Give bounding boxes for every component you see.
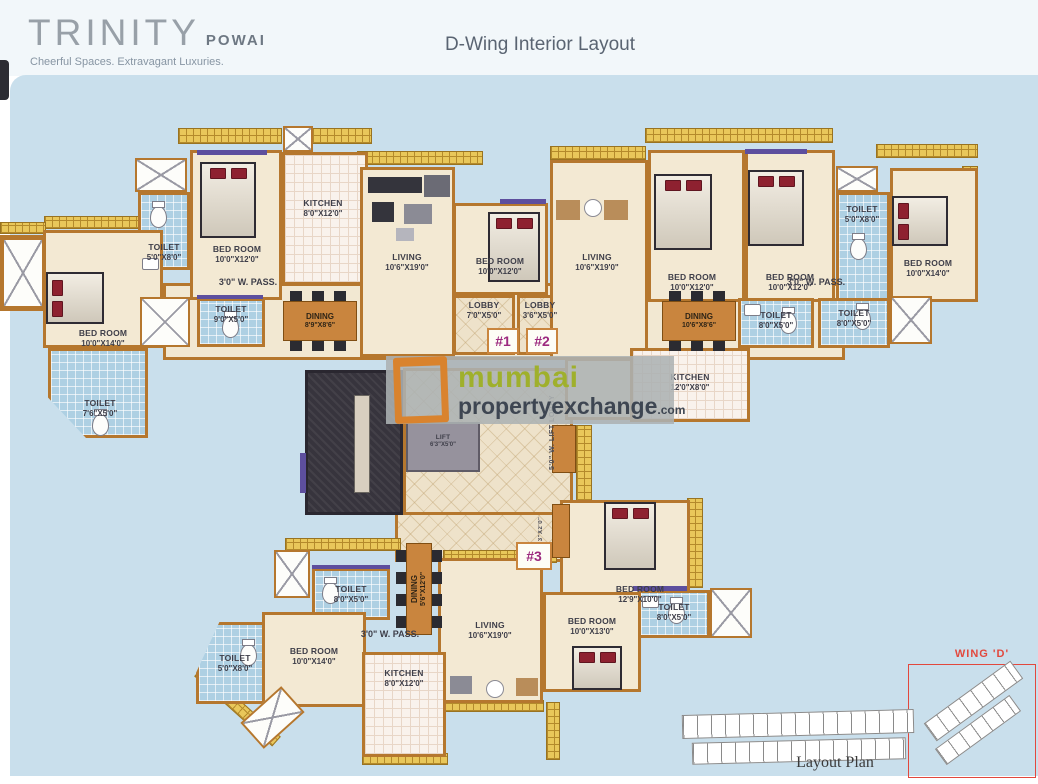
dining-table-icon: DINING5'6"X12'0"	[396, 543, 442, 635]
unit-3-badge: #3	[516, 542, 552, 570]
wall-accent	[197, 150, 267, 155]
watermark-word2-text: propertyexchange	[458, 393, 657, 419]
room-dim: 10'6"X19'0"	[357, 263, 457, 273]
room-name: LOBBY	[500, 300, 580, 311]
sofa-icon	[404, 204, 432, 224]
room-label: TOILET8'0"X5'0"	[736, 310, 816, 331]
room-dim: 8'0"X5'0"	[736, 321, 816, 331]
site-building-strip	[682, 709, 915, 739]
room-label: TOILET5'0"X8'0"	[822, 204, 902, 225]
room-dim: 10'6"X19'0"	[547, 263, 647, 273]
room-name: TOILET	[311, 584, 391, 595]
room-name: TOILET	[191, 304, 271, 315]
dining-table-icon: DINING10'6"X8'6"	[662, 291, 736, 351]
room-dim: 8'9"X8'6"	[305, 322, 335, 330]
room-dim: 5'0"X8'0"	[822, 215, 902, 225]
bed-icon	[200, 162, 256, 238]
room-label: DINING10'6"X8'6"	[663, 302, 735, 340]
room-label: DINING8'9"X8'6"	[284, 302, 356, 340]
room-name: BED ROOM	[542, 616, 642, 627]
shaft-x-icon	[836, 166, 878, 192]
room-dim: 7'6"X5'0"	[60, 409, 140, 419]
room-name: BED ROOM	[264, 646, 364, 657]
room-label: KITCHEN8'0"X12'0"	[273, 198, 373, 219]
toilet-icon	[850, 238, 867, 260]
brand-name: TRINITY	[28, 12, 200, 53]
pillow	[579, 652, 595, 663]
room-dim: 8'0"X12'0"	[354, 679, 454, 689]
pillow	[612, 508, 628, 519]
shaft-x-icon	[2, 238, 44, 308]
room-label: BED ROOM10'0"X14'0"	[878, 258, 978, 279]
watermark-com: .com	[657, 403, 685, 417]
room-label: BED ROOM10'0"X12'0"	[450, 256, 550, 277]
room-name: TOILET	[822, 204, 902, 215]
shaft-x-icon	[710, 588, 752, 638]
pillow	[52, 301, 63, 317]
room-name: BED ROOM	[53, 328, 153, 339]
room-label: LIVING10'6"X19'0"	[440, 620, 540, 641]
niche-block	[552, 504, 570, 558]
wall-accent	[300, 453, 306, 493]
room-dim: 10'6"X19'0"	[440, 631, 540, 641]
sofa-icon	[372, 202, 394, 222]
room-name: TOILET	[60, 398, 140, 409]
room-dim: 8'0"X5'0"	[814, 319, 894, 329]
room-label: LIFT6'3"X5'0"	[406, 434, 480, 450]
watermark-word2: propertyexchange.com	[458, 395, 685, 418]
pillow	[665, 180, 681, 191]
pillow	[496, 218, 512, 229]
room-name: BED ROOM	[187, 244, 287, 255]
wall-accent	[500, 199, 546, 204]
unit-2-badge: #2	[526, 328, 558, 354]
watermark-logo-icon	[393, 356, 449, 424]
bed-icon	[604, 502, 656, 570]
room-dim: 10'0"X12'0"	[450, 267, 550, 277]
room-dim: 5'6"X12'0"	[420, 572, 428, 606]
room-label: TOILET8'0"X5'0"	[634, 602, 714, 623]
watermark: mumbai propertyexchange.com	[386, 356, 674, 424]
pillow	[686, 180, 702, 191]
pillow	[600, 652, 616, 663]
chairs	[290, 291, 350, 301]
room-name: DINING	[306, 312, 334, 322]
room-label: TOILET8'0"X5'0"	[311, 584, 391, 605]
room-dim: 10'0"X14'0"	[878, 269, 978, 279]
table-top: DINING8'9"X8'6"	[283, 301, 357, 341]
room-dim: 3'6"X5'0"	[500, 311, 580, 321]
exterior-wall	[546, 702, 560, 760]
room-dim: 5'0"X8'0"	[195, 664, 275, 674]
pillow	[231, 168, 247, 179]
room-dim: 6'3"X5'0"	[406, 442, 480, 450]
brand-location: POWAI	[206, 32, 266, 49]
room-label: TOILET7'6"X5'0"	[60, 398, 140, 419]
table-top: DINING5'6"X12'0"	[406, 543, 432, 635]
edge-logo-mark	[0, 60, 9, 100]
tv-console-icon	[368, 177, 422, 193]
room-name: TOILET	[736, 310, 816, 321]
room-dim: 10'0"X12'0"	[642, 283, 742, 293]
pillow	[210, 168, 226, 179]
unit-1-badge: #1	[487, 328, 519, 354]
room-label: TOILET5'0"X8'0"	[195, 653, 275, 674]
room-name: TOILET	[814, 308, 894, 319]
exterior-wall	[550, 146, 646, 160]
passage-label: 3'0" W. PASS.	[756, 277, 876, 287]
wall-accent	[197, 295, 263, 299]
toilet-icon	[150, 206, 167, 228]
room-name: TOILET	[195, 653, 275, 664]
room-dim: 9'0"X5'0"	[191, 315, 271, 325]
exterior-wall	[645, 128, 833, 143]
wall-accent	[745, 149, 807, 154]
room-name: DINING	[685, 312, 713, 322]
room-name: LIVING	[357, 252, 457, 263]
room-dim: 10'0"X14'0"	[264, 657, 364, 667]
room-name: BED ROOM	[590, 584, 690, 595]
bed-icon	[572, 646, 622, 690]
room-name: BED ROOM	[642, 272, 742, 283]
room-label: LIVING10'6"X19'0"	[357, 252, 457, 273]
chairs	[669, 341, 729, 351]
shaft-x-icon	[890, 296, 932, 344]
site-layout-plan: WING 'D' Layout Plan	[680, 648, 1036, 780]
wing-d-label: WING 'D'	[930, 648, 1034, 660]
pillow	[758, 176, 774, 187]
table-icon	[486, 680, 504, 698]
room-label: BED ROOM10'0"X13'0"	[542, 616, 642, 637]
room-dim: 10'0"X13'0"	[542, 627, 642, 637]
exterior-wall	[876, 144, 978, 158]
exterior-wall	[0, 222, 46, 234]
room-name: BED ROOM	[878, 258, 978, 269]
room-name: LIVING	[547, 252, 647, 263]
passage-label: 3'0" W. PASS.	[330, 629, 450, 639]
sofa-icon	[424, 175, 450, 197]
shaft-x-icon	[135, 158, 187, 192]
chairs	[290, 341, 350, 351]
table-top: DINING10'6"X8'6"	[662, 301, 736, 341]
exterior-wall	[178, 128, 282, 144]
bed-icon	[748, 170, 804, 246]
room-name: LIFT	[406, 434, 480, 442]
shaft-x-icon	[274, 550, 310, 598]
room-dim: 8'0"X5'0"	[311, 595, 391, 605]
room-dim: 10'0"X12'0"	[187, 255, 287, 265]
room-name: LIVING	[440, 620, 540, 631]
table-icon	[396, 228, 414, 241]
watermark-text: mumbai propertyexchange.com	[458, 363, 685, 418]
passage-label: 3'0" W. PASS.	[188, 277, 308, 287]
watermark-word1: mumbai	[458, 363, 685, 393]
room-label: TOILET8'0"X5'0"	[814, 308, 894, 329]
sofa-icon	[604, 200, 628, 220]
room-label: LOBBY3'6"X5'0"	[500, 300, 580, 321]
exterior-wall	[357, 151, 483, 165]
room-name: KITCHEN	[273, 198, 373, 209]
brand-tagline: Cheerful Spaces. Extravagant Luxuries.	[30, 56, 224, 68]
header-band: TRINITYPOWAI Cheerful Spaces. Extravagan…	[0, 0, 1038, 76]
room-dim: 8'0"X12'0"	[273, 209, 373, 219]
room-dim: 8'0"X5'0"	[634, 613, 714, 623]
pillow	[779, 176, 795, 187]
bed-icon	[46, 272, 104, 324]
pillow	[898, 224, 909, 240]
floor-plan-page: TRINITYPOWAI Cheerful Spaces. Extravagan…	[0, 0, 1038, 784]
shaft-x-icon	[283, 126, 313, 152]
sofa-icon	[556, 200, 580, 220]
brand-logo: TRINITYPOWAI	[28, 12, 266, 54]
room-label: BED ROOM10'0"X12'0"	[187, 244, 287, 265]
room-name: KITCHEN	[354, 668, 454, 679]
table-icon	[584, 199, 602, 217]
room-label: KITCHEN8'0"X12'0"	[354, 668, 454, 689]
room-name: DINING	[410, 575, 420, 603]
sofa-icon	[516, 678, 538, 696]
stair-flight	[354, 395, 370, 493]
room-dim: 10'0"X14'0"	[53, 339, 153, 349]
room-label: BED ROOM10'0"X14'0"	[264, 646, 364, 667]
dining-table-icon: DINING8'9"X8'6"	[283, 291, 357, 351]
bed-icon	[654, 174, 712, 250]
room-name: BED ROOM	[450, 256, 550, 267]
room-label: LIVING10'6"X19'0"	[547, 252, 647, 273]
pillow	[52, 280, 63, 296]
room-label: TOILET9'0"X5'0"	[191, 304, 271, 325]
pillow	[517, 218, 533, 229]
room-label: BED ROOM10'0"X12'0"	[642, 272, 742, 293]
wall-accent	[312, 565, 390, 569]
exterior-wall	[312, 128, 372, 144]
room-dim: 10'6"X8'6"	[682, 322, 716, 330]
room-name: TOILET	[634, 602, 714, 613]
page-title: D-Wing Interior Layout	[380, 34, 700, 56]
layout-plan-caption: Layout Plan	[750, 754, 920, 772]
pillow	[633, 508, 649, 519]
room-label: BED ROOM10'0"X14'0"	[53, 328, 153, 349]
